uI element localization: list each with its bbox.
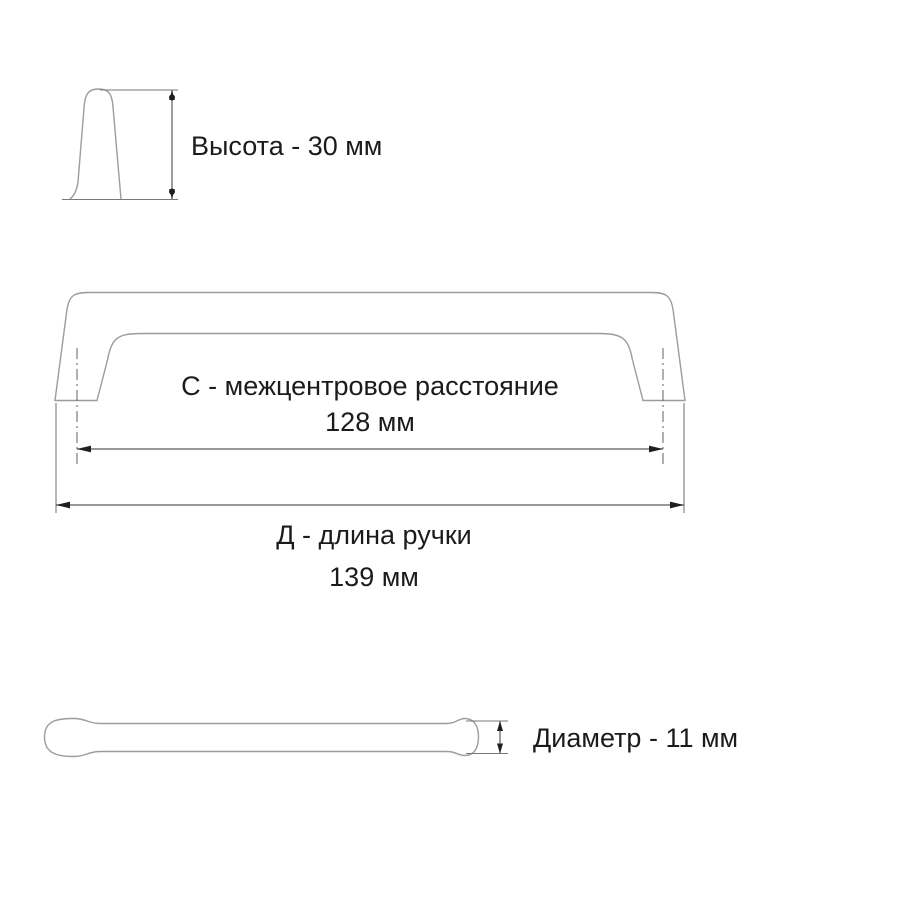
dimension-arrow-down-icon: [497, 744, 503, 754]
drawing-linework: [0, 0, 900, 900]
dimension-arrow-up-icon: [497, 721, 503, 731]
length-value: 139 мм: [0, 561, 748, 593]
center-distance-label: С - межцентровое расстояние: [0, 370, 740, 402]
front-view: [55, 293, 685, 514]
handle-side-profile: [70, 89, 121, 199]
technical-drawing-page: Высота - 30 мм С - межцентровое расстоян…: [0, 0, 900, 900]
side-view: [62, 89, 178, 200]
dimension-arrow-left-icon: [77, 446, 91, 453]
dimension-arrow-right-icon: [649, 446, 663, 453]
dimension-arrow-left-icon: [56, 502, 70, 509]
dimension-dot-icon: [169, 95, 175, 101]
diameter-dimension-label: Диаметр - 11 мм: [533, 722, 738, 754]
handle-top-outline: [45, 719, 479, 757]
dimension-arrow-right-icon: [670, 502, 684, 509]
length-label: Д - длина ручки: [0, 519, 748, 551]
height-dimension-label: Высота - 30 мм: [191, 130, 382, 162]
center-distance-value: 128 мм: [0, 406, 740, 438]
top-view: [45, 719, 509, 757]
dimension-dot-icon: [169, 189, 175, 195]
